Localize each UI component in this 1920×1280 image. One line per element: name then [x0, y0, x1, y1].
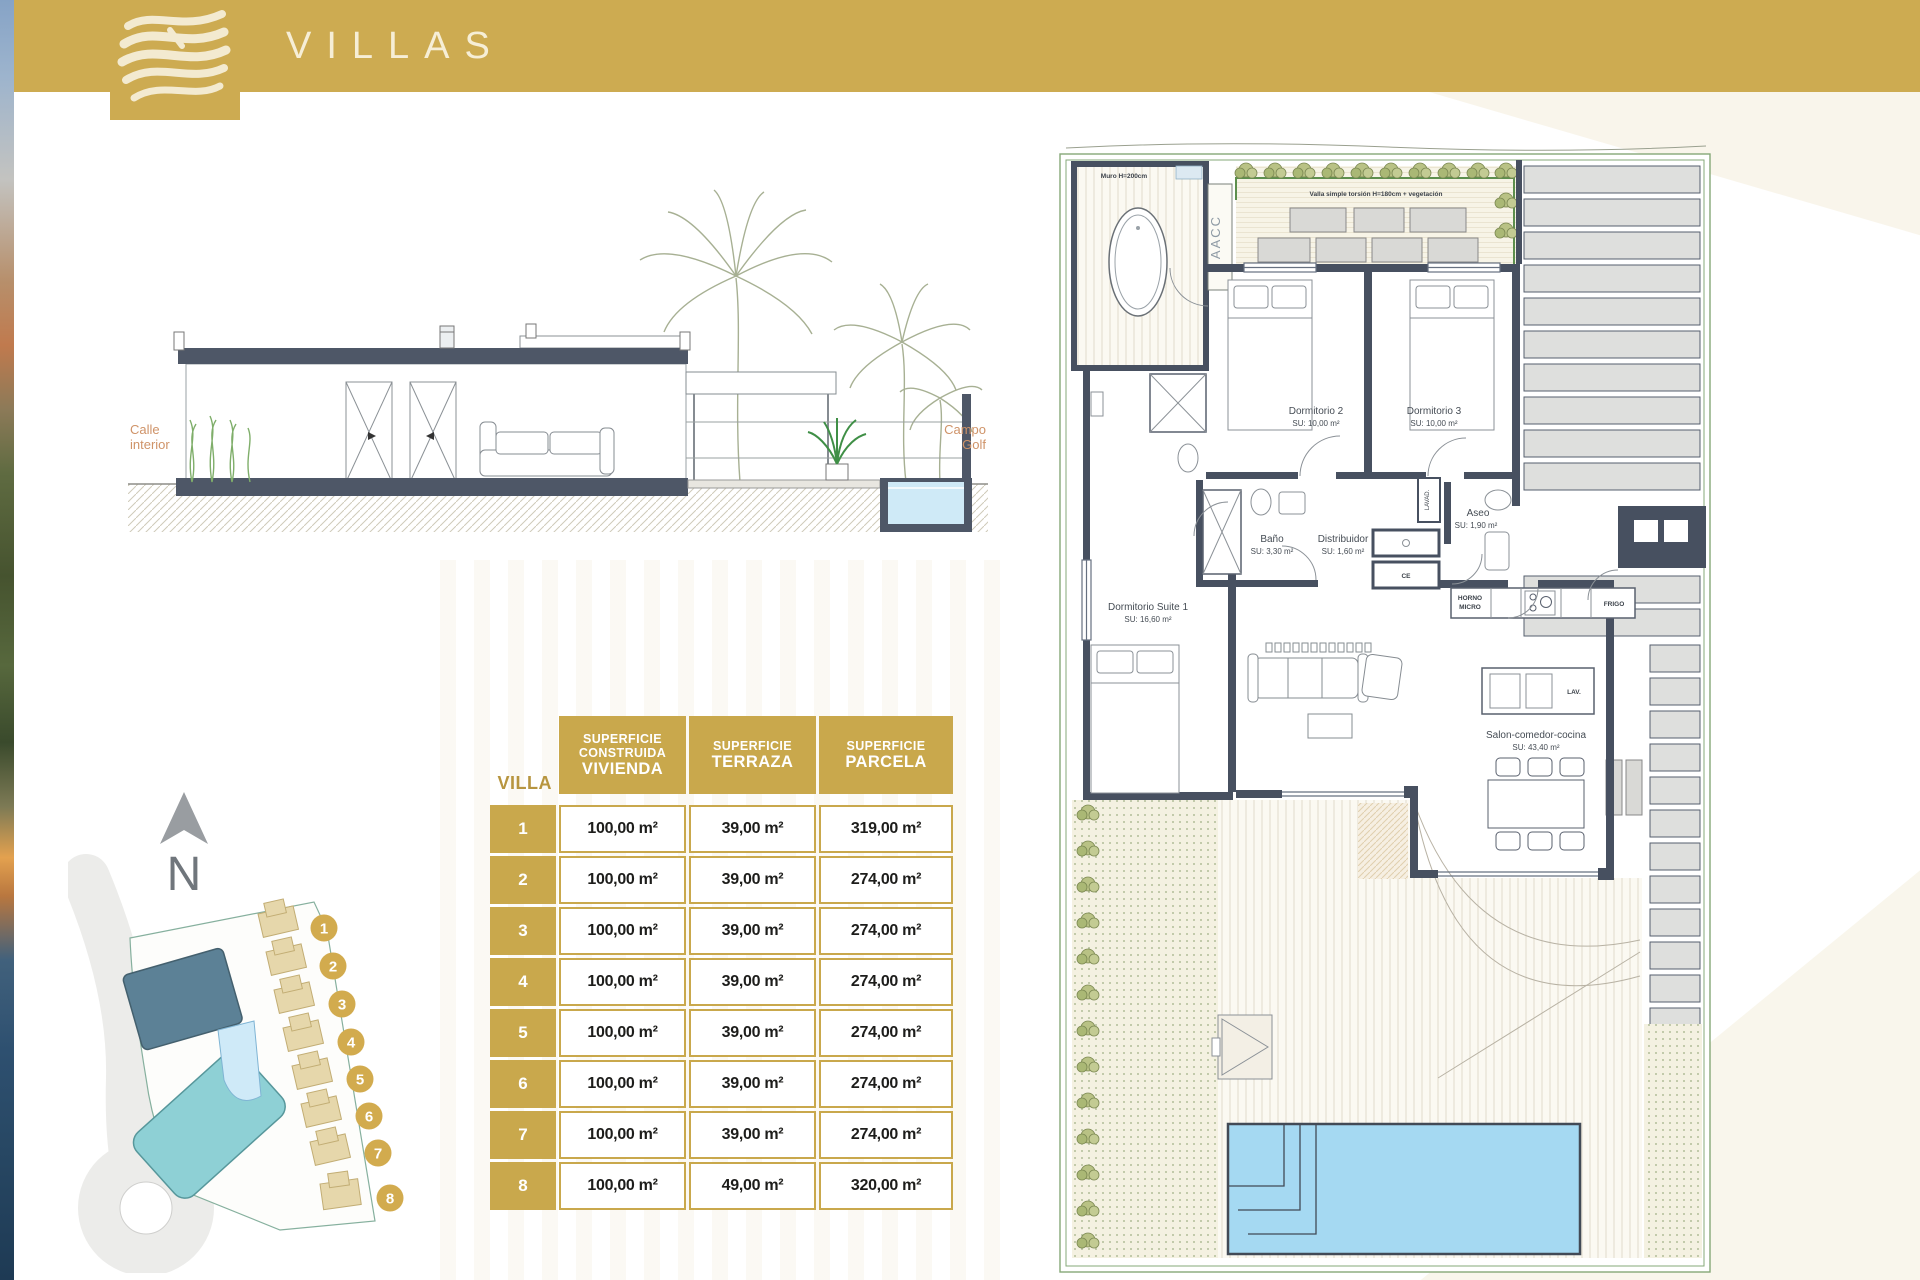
- label-horno: HORNO: [1458, 595, 1482, 602]
- roof-slab: [178, 348, 688, 364]
- palm-tree-sketch: [640, 190, 982, 482]
- room-distribuidor: Distribuidor: [1318, 534, 1369, 545]
- room-dormitorio3: Dormitorio 3: [1407, 406, 1462, 417]
- table-cell-vivienda: 100,00 m²: [559, 856, 686, 904]
- header-bar: VILLAS: [14, 0, 1920, 92]
- side-photo-strip: [0, 0, 14, 1280]
- svg-text:SU: 43,40 m²: SU: 43,40 m²: [1512, 743, 1559, 752]
- page-title: VILLAS: [286, 0, 505, 92]
- table-row-villa-number: 3: [490, 907, 556, 955]
- logo-waves-icon: [110, 0, 240, 120]
- table-row-villa-number: 8: [490, 1162, 556, 1210]
- surfaces-table: VILLA SUPERFICIE CONSTRUIDA VIVIENDA SUP…: [490, 716, 954, 1210]
- label-ce: CE: [1401, 573, 1411, 580]
- bed-suite: [1091, 645, 1179, 793]
- table-header-villa: VILLA: [490, 716, 556, 802]
- aacc-strip: AACC: [1208, 184, 1232, 290]
- toilet: [1178, 444, 1198, 472]
- floor-slab: [176, 478, 688, 496]
- sofa: [1248, 654, 1368, 702]
- plot-number: 3: [338, 997, 346, 1014]
- table-cell-parcela: 274,00 m²: [819, 1111, 953, 1159]
- table-cell-parcela: 274,00 m²: [819, 1060, 953, 1108]
- plot-number: 2: [329, 959, 337, 976]
- table-cell-parcela: 319,00 m²: [819, 805, 953, 853]
- dining-set: [1488, 758, 1584, 850]
- shower: [1485, 532, 1509, 570]
- armchair: [1361, 654, 1402, 701]
- table-cell-terraza: 39,00 m²: [689, 1060, 816, 1108]
- sink: [1279, 492, 1305, 514]
- label-muro: Muro H=200cm: [1101, 173, 1148, 180]
- chimney: [440, 326, 454, 348]
- svg-text:interior: interior: [130, 437, 170, 452]
- label-lavad: LAVAD.: [1425, 489, 1431, 510]
- elevation-drawing: Calle interior Campo Golf: [128, 182, 988, 550]
- table-cell-vivienda: 100,00 m²: [559, 907, 686, 955]
- table-cell-terraza: 49,00 m²: [689, 1162, 816, 1210]
- plot-number: 4: [347, 1035, 356, 1052]
- brochure-page: VILLAS: [0, 0, 1920, 1280]
- table-cell-vivienda: 100,00 m²: [559, 958, 686, 1006]
- table-header-parcela: SUPERFICIE PARCELA: [819, 716, 953, 794]
- table-cell-terraza: 39,00 m²: [689, 958, 816, 1006]
- svg-text:SU: 1,60 m²: SU: 1,60 m²: [1322, 547, 1365, 556]
- table-cell-vivienda: 100,00 m²: [559, 805, 686, 853]
- table-cell-terraza: 39,00 m²: [689, 805, 816, 853]
- plot-number: 5: [356, 1072, 364, 1089]
- table-cell-parcela: 274,00 m²: [819, 1009, 953, 1057]
- toilet: [1485, 490, 1511, 510]
- table-row-villa-number: 1: [490, 805, 556, 853]
- table-cell-vivienda: 100,00 m²: [559, 1162, 686, 1210]
- swimming-pool: [1228, 1124, 1580, 1254]
- section-pool: [880, 478, 972, 532]
- table-header-terraza: SUPERFICIE TERRAZA: [689, 716, 816, 794]
- deck-hatch-patch: [1358, 803, 1408, 879]
- table-row-villa-number: 2: [490, 856, 556, 904]
- label-frigo: FRIGO: [1604, 601, 1625, 608]
- room-bano: Baño: [1260, 534, 1284, 545]
- room-suite: Dormitorio Suite 1: [1108, 602, 1188, 613]
- svg-text:Golf: Golf: [962, 437, 986, 452]
- jacuzzi-patio: Muro H=200cm: [1074, 164, 1206, 368]
- room-dormitorio2: Dormitorio 2: [1289, 406, 1344, 417]
- svg-text:SU: 16,60 m²: SU: 16,60 m²: [1124, 615, 1171, 624]
- svg-text:SU: 10,00 m²: SU: 10,00 m²: [1292, 419, 1339, 428]
- svg-text:MICRO: MICRO: [1459, 604, 1481, 611]
- potted-plant: [808, 418, 866, 480]
- toilet: [1251, 489, 1271, 515]
- table-cell-parcela: 274,00 m²: [819, 856, 953, 904]
- room-salon: Salon-comedor-cocina: [1486, 730, 1586, 741]
- shade-sail-symbol: [1212, 1015, 1272, 1079]
- table-cell-vivienda: 100,00 m²: [559, 1111, 686, 1159]
- house-section: [174, 324, 690, 496]
- table-cell-terraza: 39,00 m²: [689, 907, 816, 955]
- label-campo-golf: Campo: [944, 422, 986, 437]
- table-cell-terraza: 39,00 m²: [689, 1009, 816, 1057]
- table-row-villa-number: 4: [490, 958, 556, 1006]
- north-arrow-icon: N: [160, 792, 208, 901]
- table-cell-vivienda: 100,00 m²: [559, 1060, 686, 1108]
- coffee-table: [1308, 714, 1352, 738]
- label-calle-interior: Calle: [130, 422, 160, 437]
- svg-text:SU: 10,00 m²: SU: 10,00 m²: [1410, 419, 1457, 428]
- floor-plan: Muro H=200cm AACC Valla simple torsión H…: [1058, 140, 1713, 1275]
- table-cell-parcela: 274,00 m²: [819, 958, 953, 1006]
- table-row-villa-number: 6: [490, 1060, 556, 1108]
- label-valla: Valla simple torsión H=180cm + vegetació…: [1310, 191, 1443, 198]
- entrance-gate: [1618, 506, 1706, 568]
- table-cell-parcela: 274,00 m²: [819, 907, 953, 955]
- table-cell-parcela: 320,00 m²: [819, 1162, 953, 1210]
- table-row-villa-number: 5: [490, 1009, 556, 1057]
- label-lav: LAV.: [1567, 689, 1581, 696]
- table-cell-terraza: 39,00 m²: [689, 856, 816, 904]
- svg-text:SU: 1,90 m²: SU: 1,90 m²: [1455, 521, 1498, 530]
- north-label: N: [167, 848, 202, 901]
- table-header-vivienda: SUPERFICIE CONSTRUIDA VIVIENDA: [559, 716, 686, 794]
- room-aseo: Aseo: [1467, 508, 1490, 519]
- table-row-villa-number: 7: [490, 1111, 556, 1159]
- site-plan: N 1 2: [68, 778, 428, 1273]
- kitchen-island: LAV.: [1482, 668, 1594, 714]
- table-cell-vivienda: 100,00 m²: [559, 1009, 686, 1057]
- garden-right: [1644, 1024, 1702, 1258]
- rear-garden-terrace: Valla simple torsión H=180cm + vegetació…: [1235, 163, 1517, 264]
- street-wavy-line: [1066, 144, 1706, 151]
- plot-number: 8: [386, 1191, 394, 1208]
- table-cell-terraza: 39,00 m²: [689, 1111, 816, 1159]
- plot-number: 6: [365, 1109, 373, 1126]
- plot-number: 1: [320, 921, 328, 938]
- brand-logo: [110, 0, 240, 120]
- plot-number: 7: [374, 1146, 382, 1163]
- label-aacc: AACC: [1208, 215, 1223, 259]
- svg-text:SU: 3,30 m²: SU: 3,30 m²: [1251, 547, 1294, 556]
